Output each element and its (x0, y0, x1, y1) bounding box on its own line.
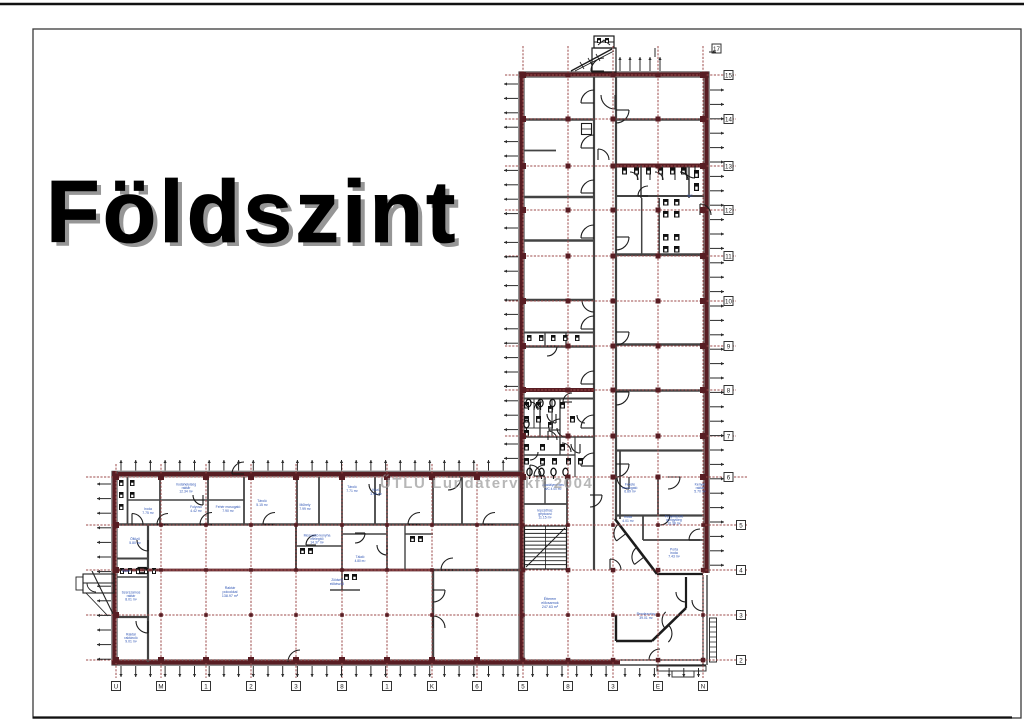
svg-text:M: M (158, 683, 163, 690)
svg-text:3.05 m²: 3.05 m² (370, 492, 382, 496)
svg-text:9.01 m²: 9.01 m² (125, 640, 137, 644)
svg-text:6.89 m²: 6.89 m² (624, 490, 636, 494)
svg-text:3: 3 (739, 612, 743, 619)
svg-text:4: 4 (739, 567, 743, 574)
svg-text:8: 8 (340, 683, 344, 690)
svg-text:7.75 m²: 7.75 m² (142, 511, 154, 515)
svg-text:5.15 m²: 5.15 m² (256, 503, 268, 507)
svg-text:2: 2 (249, 683, 253, 690)
svg-text:Előtér: Előtér (122, 569, 131, 573)
svg-text:5: 5 (739, 522, 743, 529)
svg-text:11.15 m²: 11.15 m² (538, 516, 552, 520)
svg-text:7: 7 (727, 433, 731, 440)
svg-text:8: 8 (566, 683, 570, 690)
svg-text:5.70 m²: 5.70 m² (694, 490, 706, 494)
svg-text:WC: WC (687, 194, 693, 198)
svg-text:10.38 m²: 10.38 m² (667, 522, 681, 526)
svg-text:12: 12 (725, 207, 732, 214)
svg-text:7.43 m²: 7.43 m² (668, 555, 680, 559)
svg-text:6: 6 (727, 474, 731, 481)
svg-text:12.34 m²: 12.34 m² (179, 490, 193, 494)
svg-text:ŰTLU Lundaterv kft 2004: ŰTLU Lundaterv kft 2004 (380, 474, 594, 492)
svg-text:1: 1 (204, 683, 208, 690)
svg-text:Földszint: Földszint (46, 162, 458, 261)
svg-text:4.80 m²: 4.80 m² (355, 559, 366, 563)
svg-text:3: 3 (611, 683, 615, 690)
svg-text:13: 13 (725, 163, 732, 170)
svg-text:7.71 m²: 7.71 m² (346, 489, 358, 493)
svg-text:7.90 m²: 7.90 m² (222, 509, 234, 513)
svg-text:9: 9 (727, 343, 731, 350)
svg-text:138.97 m²: 138.97 m² (222, 594, 239, 598)
svg-text:14: 14 (725, 116, 732, 123)
svg-text:11: 11 (725, 253, 732, 260)
svg-text:14.37 m²: 14.37 m² (310, 541, 324, 545)
svg-text:U: U (114, 683, 118, 690)
svg-text:8.01 m²: 8.01 m² (125, 598, 137, 602)
svg-text:15: 15 (725, 72, 732, 79)
svg-text:6: 6 (475, 683, 479, 690)
svg-text:4.42 m²: 4.42 m² (190, 509, 202, 513)
svg-text:7.99 m²: 7.99 m² (299, 507, 311, 511)
svg-text:10: 10 (725, 298, 732, 305)
svg-text:5.80 m²: 5.80 m² (129, 541, 141, 545)
svg-text:5: 5 (521, 683, 525, 690)
svg-text:4.01 m²: 4.01 m² (622, 519, 634, 523)
svg-text:előkészítő: előkészítő (330, 582, 345, 586)
svg-text:1: 1 (385, 683, 389, 690)
svg-text:247.63 m²: 247.63 m² (542, 605, 559, 609)
svg-text:8: 8 (727, 387, 731, 394)
svg-text:3: 3 (294, 683, 298, 690)
svg-text:E: E (656, 683, 660, 690)
svg-text:2: 2 (739, 657, 743, 664)
svg-text:N: N (701, 683, 705, 690)
svg-text:39.01 m²: 39.01 m² (639, 616, 653, 620)
